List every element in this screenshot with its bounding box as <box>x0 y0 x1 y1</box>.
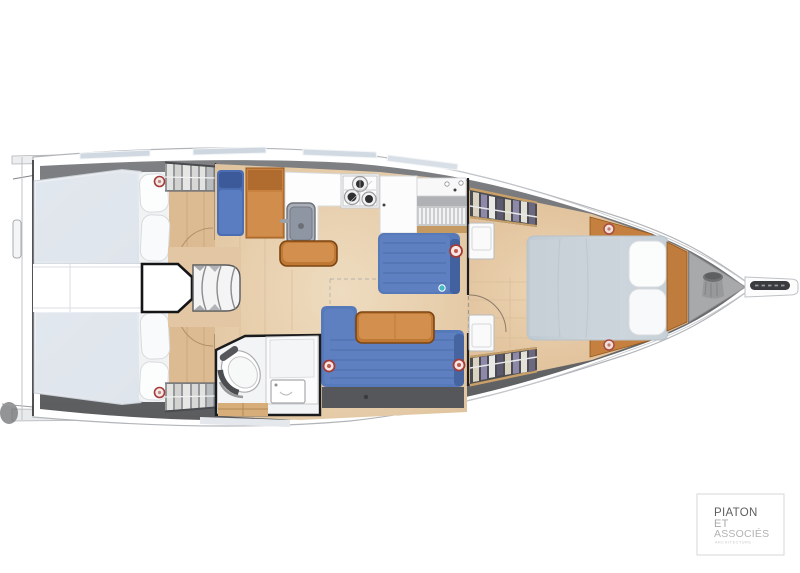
svg-text:ASSOCIÉS: ASSOCIÉS <box>714 527 769 540</box>
svg-text:ARCHITECTURE: ARCHITECTURE <box>715 541 752 545</box>
